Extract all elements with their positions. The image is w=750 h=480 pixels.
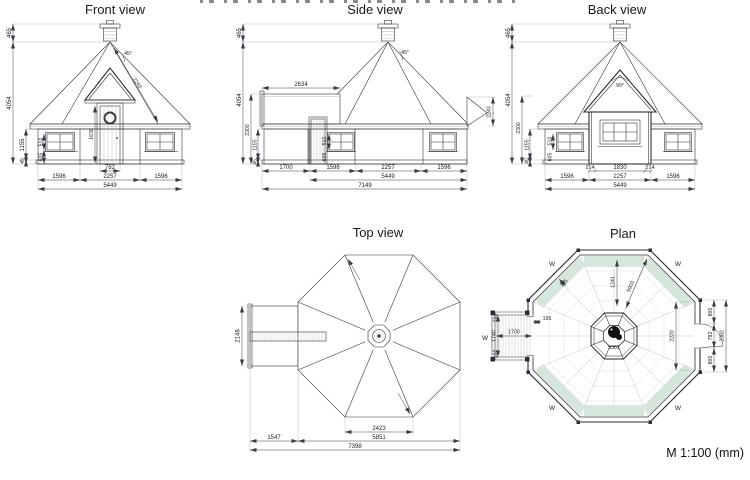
dim-plan-porch-length: 1700	[508, 330, 520, 336]
plan-table-label: 5361	[608, 345, 620, 351]
dim-back-seg-center: 2257	[613, 174, 627, 180]
dim-front-total-height: 4054	[7, 96, 13, 110]
dim-side-sill-height: 605	[322, 153, 328, 162]
dim-front-door-width: 782	[105, 165, 116, 171]
dim-back-seg-right: 1596	[666, 174, 680, 180]
dim-top-total-width: 7398	[348, 444, 362, 450]
drawing-sheet: Front view	[0, 0, 750, 480]
front-chimney	[100, 21, 120, 42]
plan-title: Plan	[610, 226, 636, 241]
dim-top-porch-length: 1547	[267, 435, 281, 441]
plan-view: Plan	[480, 220, 750, 465]
front-view: Front view	[0, 0, 235, 200]
dim-side-window-height: 510	[322, 137, 328, 146]
front-title: Front view	[85, 2, 146, 17]
dim-side-total-height: 4054	[237, 93, 243, 107]
dim-side-seg-center: 2257	[381, 165, 395, 171]
dim-plan-wall-thickness: 195	[543, 316, 552, 322]
plan-window-label-porch: W	[482, 335, 489, 342]
top-porch-roof	[248, 304, 298, 368]
back-window-left	[555, 133, 585, 152]
side-view: Side view	[235, 0, 500, 200]
dim-front-door-height: 1630	[89, 128, 95, 140]
dim-back-gable-angle: 90°	[616, 83, 624, 89]
dim-side-porch-roof: 2634	[294, 82, 308, 88]
dim-back-wall-height: 1155	[525, 139, 531, 150]
dim-front-chimney-height: 465	[7, 27, 13, 38]
plan-window-label-ne: W	[675, 261, 682, 268]
dim-top-octagon-width: 5851	[372, 435, 386, 441]
dim-plan-door-total: 2382	[720, 330, 726, 342]
dim-back-base: 45	[525, 158, 531, 164]
dim-plan-door-top: 800	[708, 308, 714, 317]
dim-plan-door-bottom: 800	[708, 356, 714, 365]
dim-side-gable-slope: 2243	[487, 106, 493, 118]
dim-side-wall-height: 1155	[253, 139, 259, 150]
dim-plan-interior: 2220	[670, 330, 676, 342]
dim-side-seg-right: 1596	[437, 165, 451, 171]
dim-side-eave-height: 2300	[245, 124, 251, 136]
dim-back-sill-height: 605	[548, 153, 554, 162]
dim-front-seg-right: 1596	[154, 174, 168, 180]
dim-side-porch-length: 1700	[279, 165, 293, 171]
back-view: Back view	[500, 0, 750, 200]
dim-front-wall-height: 1155	[20, 138, 26, 152]
back-title: Back view	[588, 2, 647, 17]
front-window-right	[144, 133, 178, 152]
dim-back-window-height: 510	[548, 137, 554, 146]
dim-front-seg-left: 1596	[52, 174, 66, 180]
scale-note: M 1:100 (mm)	[640, 446, 744, 460]
dim-back-jamb-right: 214	[646, 165, 655, 171]
side-window-2	[428, 133, 458, 152]
dim-front-seg-center: 2257	[103, 174, 117, 180]
side-window-1	[326, 133, 356, 152]
dim-side-base: 45	[253, 159, 259, 165]
dim-back-eave-height: 2300	[516, 122, 522, 134]
dim-side-seg-left: 1596	[326, 165, 340, 171]
plan-window-label-se: W	[675, 405, 682, 412]
side-chimney	[378, 21, 398, 42]
dim-top-cap-face: 2423	[372, 426, 386, 432]
plan-grill-table	[591, 313, 637, 359]
dim-side-chimney-height: 465	[237, 27, 243, 38]
dim-front-roof-angle: 45°	[124, 51, 132, 57]
dim-plan-porch-end-bottom: 160	[493, 350, 499, 359]
dim-plan-door-width: 782	[708, 332, 714, 341]
back-window-right	[663, 133, 693, 152]
dim-plan-to-table: 1241	[611, 276, 617, 288]
top-title: Top view	[353, 225, 404, 240]
dim-side-body-width: 5449	[381, 174, 395, 180]
plan-window-label-sw: W	[549, 405, 556, 412]
front-window-left	[44, 133, 78, 152]
dim-back-chimney-height: 465	[506, 27, 512, 38]
dim-front-sill-height: 605	[39, 153, 45, 162]
top-chimney-cap	[364, 321, 394, 351]
dim-front-window-height: 510	[39, 138, 45, 147]
dim-plan-porch-width: 1740	[492, 330, 498, 342]
dim-back-opening: 1830	[613, 165, 627, 171]
top-view: Top view	[230, 220, 495, 460]
plan-window-label-nw: W	[549, 261, 556, 268]
back-chimney	[610, 21, 630, 42]
side-title: Side view	[347, 2, 403, 17]
dim-side-roof-angle: 45°	[401, 50, 409, 56]
dim-back-total-height: 4054	[506, 93, 512, 107]
dim-plan-porch-end-top: 160	[493, 314, 499, 323]
dim-top-porch-width: 2148	[236, 329, 242, 343]
dim-back-seg-left: 1596	[560, 174, 574, 180]
dim-back-width: 5449	[613, 183, 627, 189]
dim-front-base: 45	[20, 158, 26, 164]
dim-side-total-width: 7149	[358, 183, 372, 189]
dim-back-jamb-left: 214	[586, 165, 595, 171]
dim-front-width: 5449	[103, 183, 117, 189]
